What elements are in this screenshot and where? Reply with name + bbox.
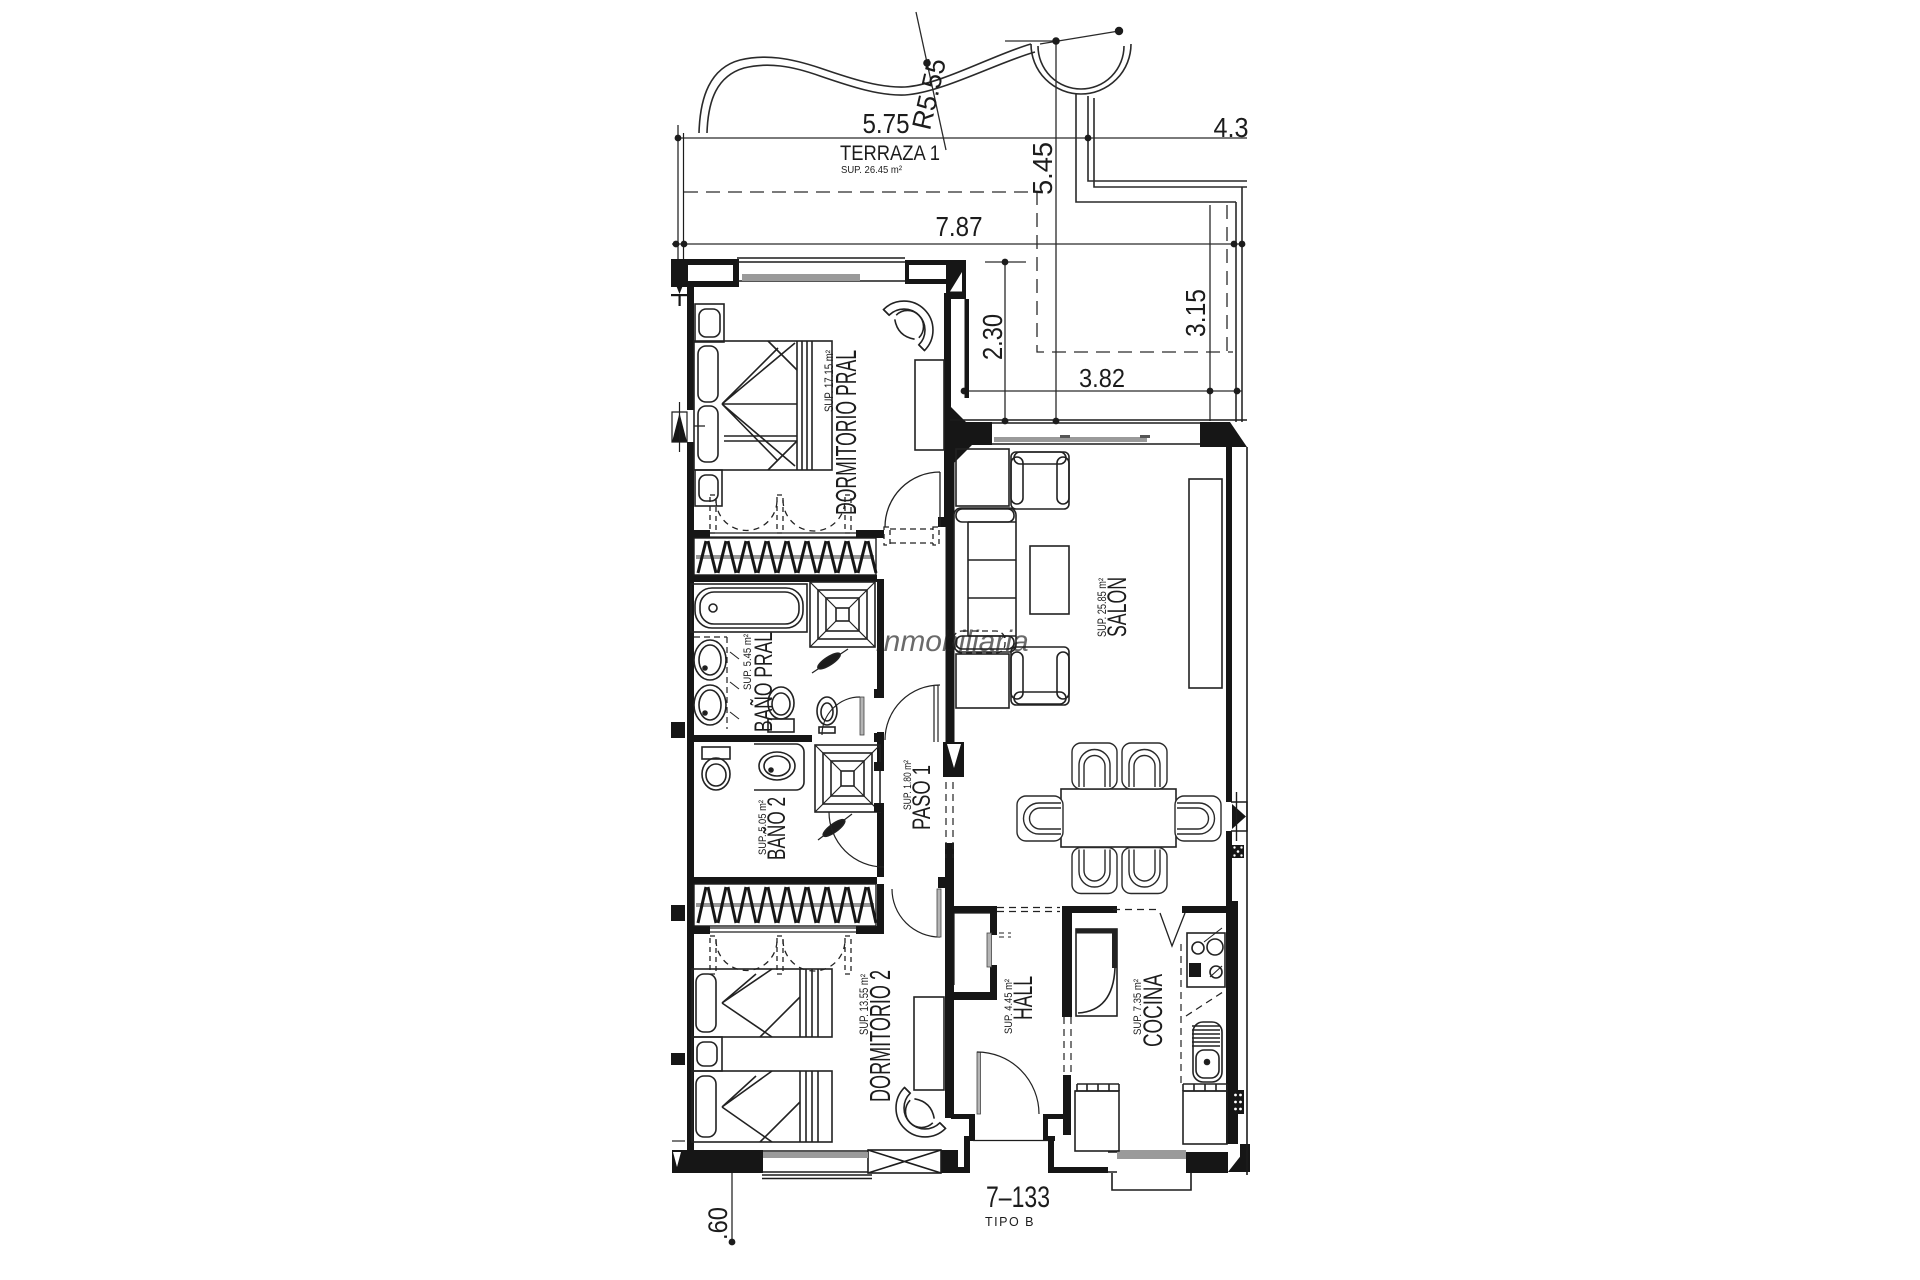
svg-text:SUP. 1.80 m²: SUP. 1.80 m² — [902, 760, 914, 810]
svg-text:7–133: 7–133 — [986, 1181, 1050, 1214]
svg-text:SUP. 25.85 m²: SUP. 25.85 m² — [1097, 578, 1109, 637]
svg-text:2.30: 2.30 — [977, 314, 1008, 360]
svg-text:SUP. 17.15 m²: SUP. 17.15 m² — [824, 350, 836, 412]
svg-text:TIPO B: TIPO B — [985, 1215, 1035, 1229]
svg-text:SUP. 7.35 m²: SUP. 7.35 m² — [1132, 979, 1144, 1035]
svg-text:Inmobiliaria: Inmobiliaria — [875, 625, 1028, 658]
svg-text:SUP. 13.55 m²: SUP. 13.55 m² — [859, 974, 871, 1035]
svg-text:SUP. 4.45 m²: SUP. 4.45 m² — [1003, 979, 1015, 1034]
svg-text:3.15: 3.15 — [1180, 289, 1211, 337]
svg-text:.60: .60 — [703, 1207, 733, 1240]
svg-text:4.3: 4.3 — [1214, 112, 1249, 143]
svg-text:5.75: 5.75 — [863, 108, 910, 139]
svg-text:TERRAZA 1: TERRAZA 1 — [840, 141, 940, 165]
svg-text:SUP. 5.45 m²: SUP. 5.45 m² — [742, 634, 754, 690]
svg-text:SUP. 26.45 m²: SUP. 26.45 m² — [841, 164, 902, 176]
svg-text:7.87: 7.87 — [936, 211, 983, 242]
svg-text:3.82: 3.82 — [1079, 363, 1125, 393]
svg-text:5.45: 5.45 — [1027, 142, 1058, 195]
svg-text:SUP. 5.05 m²: SUP. 5.05 m² — [757, 800, 769, 855]
